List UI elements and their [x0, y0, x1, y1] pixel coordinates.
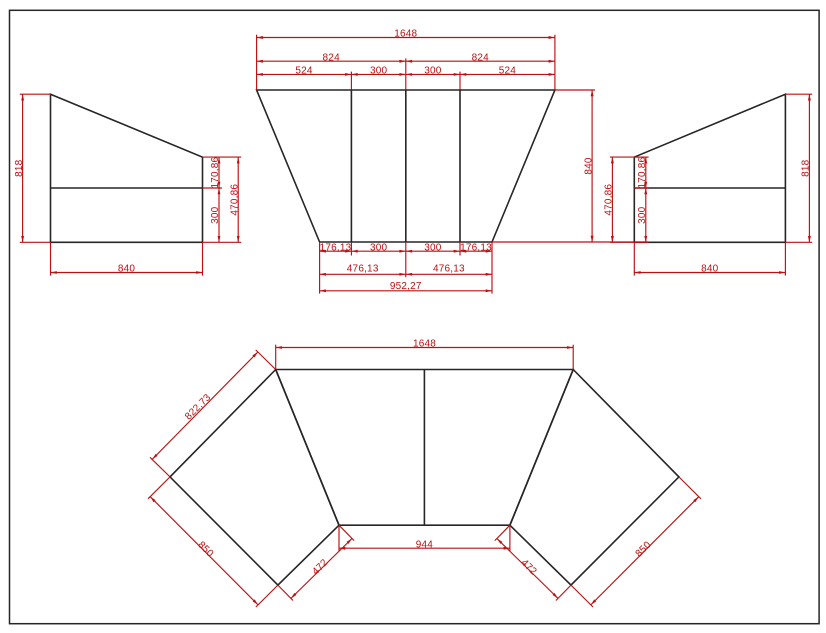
svg-text:524: 524 — [499, 66, 517, 77]
svg-text:524: 524 — [295, 66, 313, 77]
svg-text:818: 818 — [14, 159, 25, 177]
svg-text:470,86: 470,86 — [229, 184, 240, 216]
svg-text:176,13: 176,13 — [320, 242, 352, 253]
svg-text:824: 824 — [472, 52, 490, 63]
svg-text:300: 300 — [370, 242, 388, 253]
svg-text:476,13: 476,13 — [347, 264, 379, 275]
svg-text:840: 840 — [701, 264, 719, 275]
svg-text:840: 840 — [118, 264, 136, 275]
svg-text:470,86: 470,86 — [604, 184, 615, 216]
svg-text:300: 300 — [370, 66, 388, 77]
svg-text:818: 818 — [801, 159, 812, 177]
svg-text:1648: 1648 — [394, 29, 417, 40]
svg-text:850: 850 — [634, 539, 654, 559]
svg-text:176,13: 176,13 — [460, 242, 492, 253]
svg-text:850: 850 — [195, 540, 215, 560]
svg-text:300: 300 — [210, 206, 221, 224]
svg-text:944: 944 — [416, 539, 434, 550]
svg-text:472: 472 — [310, 557, 330, 577]
svg-text:824: 824 — [323, 52, 341, 63]
svg-text:472: 472 — [519, 557, 539, 577]
svg-text:840: 840 — [583, 157, 594, 175]
svg-text:476,13: 476,13 — [433, 264, 465, 275]
svg-text:300: 300 — [424, 66, 442, 77]
svg-text:300: 300 — [637, 206, 648, 224]
svg-text:170,86: 170,86 — [210, 156, 221, 188]
svg-text:1648: 1648 — [413, 339, 436, 350]
svg-text:170,86: 170,86 — [637, 156, 648, 188]
svg-text:822,73: 822,73 — [183, 392, 213, 422]
svg-text:300: 300 — [424, 242, 442, 253]
svg-text:952,27: 952,27 — [390, 281, 422, 292]
